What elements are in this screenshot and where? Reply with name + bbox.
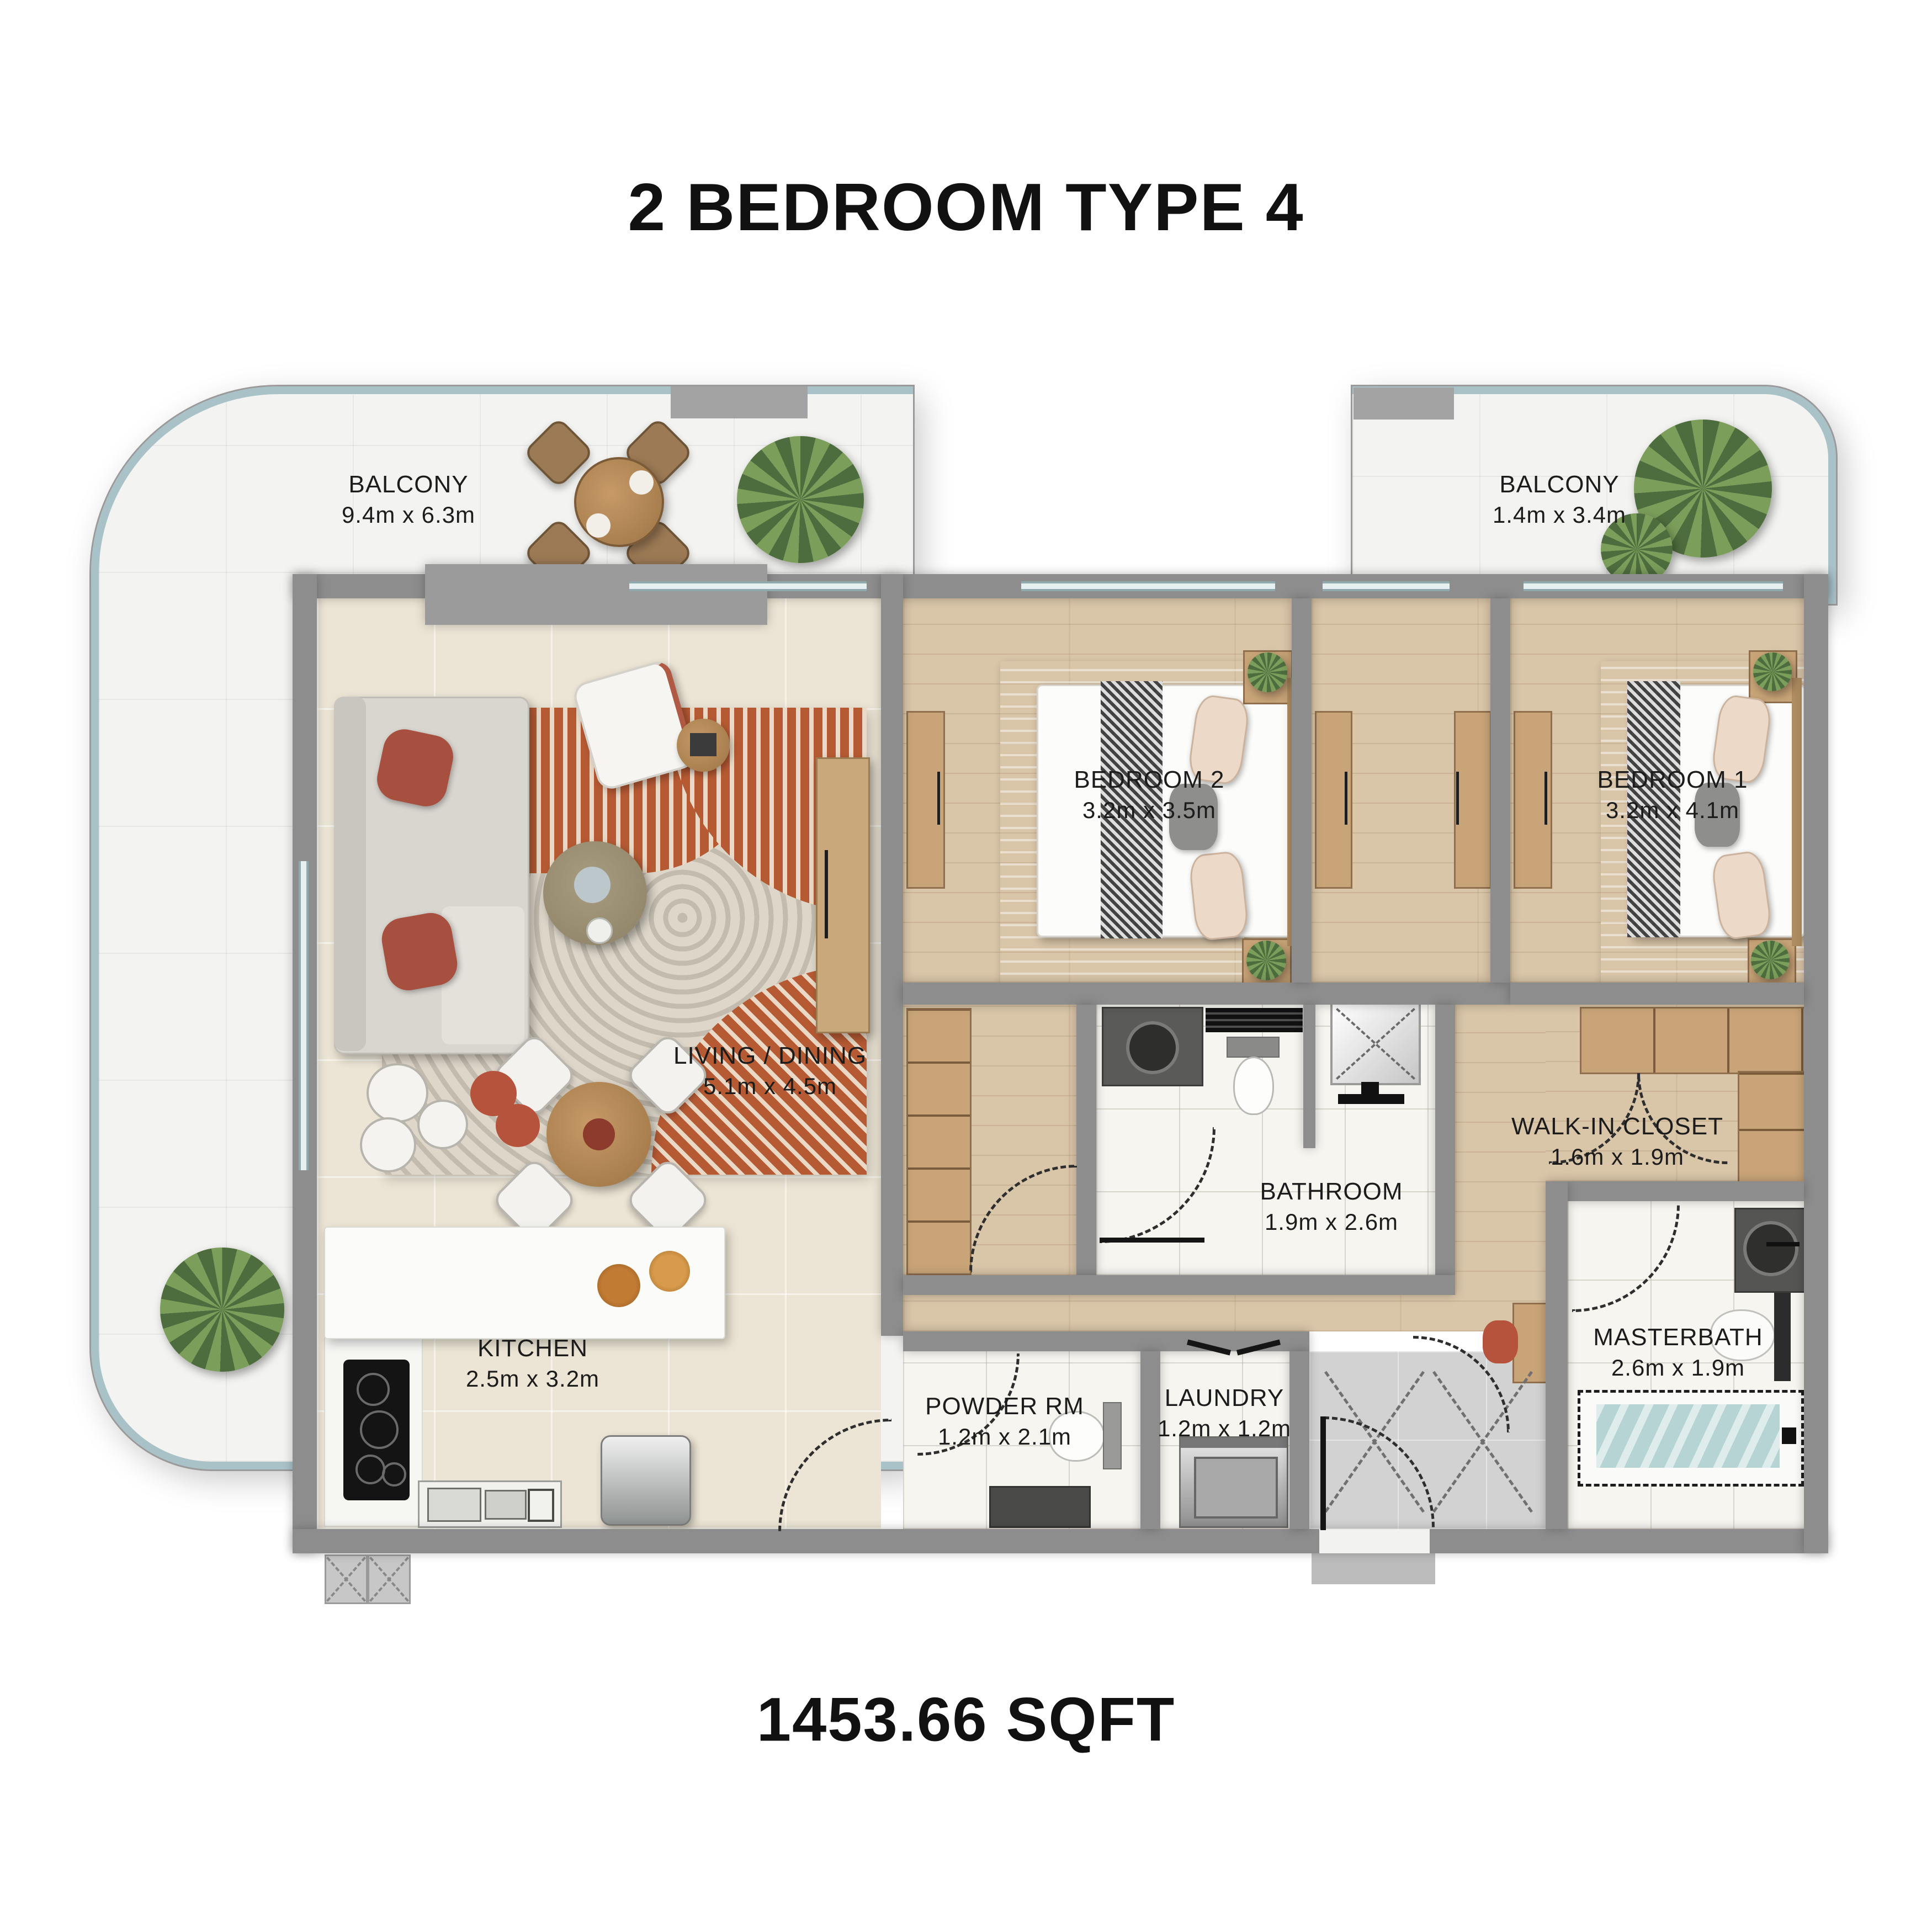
wall-bed2-hall <box>1292 598 1312 983</box>
outdoor-table <box>574 457 664 547</box>
wall-right <box>1804 574 1828 1553</box>
powder-vanity <box>989 1486 1091 1528</box>
wall-bath-stub <box>1303 1005 1315 1148</box>
sofa-chaise <box>442 906 524 1044</box>
bathtub-faucet <box>1782 1427 1796 1444</box>
wardrobe-handle <box>1456 772 1459 825</box>
food-bowl <box>597 1264 640 1307</box>
wall-masterbath-left <box>1546 1181 1568 1529</box>
closet2-cabinet <box>906 1008 972 1275</box>
console-handle <box>825 850 828 938</box>
utility-box <box>325 1554 368 1604</box>
wall-bottom <box>293 1529 1828 1553</box>
tv-console <box>816 757 870 1033</box>
room-dims: 1.9m x 2.6m <box>1260 1207 1403 1238</box>
label-balcony-right: BALCONY 1.4m x 3.4m <box>1493 469 1626 530</box>
label-laundry: LAUNDRY 1.2m x 1.2m <box>1158 1382 1291 1444</box>
red-plant-pot <box>496 1104 540 1147</box>
window-living <box>629 581 867 591</box>
room-name: BALCONY <box>1493 469 1626 500</box>
room-name: WALK-IN CLOSET <box>1511 1111 1723 1142</box>
towel-rack <box>1206 1008 1303 1032</box>
floor-plant-pot <box>417 1100 468 1149</box>
shower-head <box>1338 1094 1404 1104</box>
wall-bath-left <box>1076 1005 1096 1275</box>
label-living-dining: LIVING / DINING 5.1m x 4.5m <box>673 1040 867 1102</box>
cooktop <box>343 1360 410 1500</box>
sofa-pillow <box>379 910 461 994</box>
wall-bed2-bath <box>903 983 1510 1005</box>
foyer-chair <box>1483 1320 1518 1363</box>
utility-box <box>368 1554 411 1604</box>
shower <box>1330 1002 1421 1085</box>
wardrobe-handle <box>937 772 940 825</box>
label-bedroom2: BEDROOM 2 3.2m x 3.5m <box>1074 764 1224 826</box>
sofa-armrest <box>334 697 366 1051</box>
toilet <box>1227 1037 1280 1058</box>
wall-masterbath-top <box>1568 1181 1804 1201</box>
room-dims: 2.5m x 3.2m <box>466 1364 599 1394</box>
nightstand-plant-icon <box>1246 941 1286 980</box>
palm-plant-icon <box>160 1248 284 1372</box>
wall-header-block <box>425 564 767 625</box>
bed1-headboard <box>1792 678 1802 946</box>
room-dims: 2.6m x 1.9m <box>1593 1353 1763 1383</box>
book <box>690 733 716 756</box>
walkin-cabinet-side <box>1738 1071 1807 1187</box>
nightstand-plant-icon <box>1751 941 1790 979</box>
entry-stoop <box>1312 1553 1435 1584</box>
room-name: BEDROOM 1 <box>1597 764 1748 795</box>
room-dims: 3.2m x 3.5m <box>1074 795 1224 826</box>
room-dims: 1.6m x 1.9m <box>1511 1142 1723 1172</box>
masterbath-screen <box>1774 1293 1791 1381</box>
round-appliance <box>601 1435 691 1526</box>
parapet-block-right <box>1354 388 1454 420</box>
kitchen-sink <box>418 1480 562 1528</box>
window-living-side <box>299 861 309 1170</box>
room-dims: 1.2m x 2.1m <box>925 1422 1084 1452</box>
room-name: BEDROOM 2 <box>1074 764 1224 795</box>
label-walkin-closet: WALK-IN CLOSET 1.6m x 1.9m <box>1511 1111 1723 1172</box>
shower-head <box>1361 1082 1379 1095</box>
label-balcony-left: BALCONY 9.4m x 6.3m <box>342 469 475 530</box>
palm-plant-icon <box>737 436 864 563</box>
window-hall <box>1323 581 1450 591</box>
label-kitchen: KITCHEN 2.5m x 3.2m <box>466 1333 599 1394</box>
floor-plant-pot <box>360 1117 416 1172</box>
bathroom-sink <box>1126 1021 1179 1074</box>
masterbath-faucet <box>1766 1242 1800 1246</box>
wardrobe-handle <box>1544 772 1547 825</box>
floor-plan-canvas: 2 BEDROOM TYPE 4 1453.66 SQFT <box>0 0 1932 1932</box>
room-dims: 3.2m x 4.1m <box>1597 795 1748 826</box>
label-powder-room: POWDER RM 1.2m x 2.1m <box>925 1390 1084 1452</box>
outdoor-plate <box>629 470 654 495</box>
bathtub-water <box>1596 1404 1780 1468</box>
page-title: 2 BEDROOM TYPE 4 <box>628 168 1304 246</box>
powder-toilet-tank <box>1103 1402 1122 1469</box>
room-name: LIVING / DINING <box>673 1040 867 1071</box>
walkin-cabinet-top <box>1580 1007 1807 1074</box>
room-dims: 5.1m x 4.5m <box>673 1071 867 1102</box>
room-dims: 1.4m x 3.4m <box>1493 500 1626 530</box>
room-name: BATHROOM <box>1260 1176 1403 1207</box>
nightstand-plant-icon <box>1248 652 1287 692</box>
table-tray <box>574 867 611 903</box>
room-name: POWDER RM <box>925 1390 1084 1422</box>
room-name: MASTERBATH <box>1593 1321 1763 1353</box>
area-text: 1453.66 SQFT <box>757 1684 1176 1755</box>
washing-machine <box>1179 1436 1288 1528</box>
outdoor-plate <box>586 513 611 538</box>
corridor-floor <box>903 1295 1546 1331</box>
food-bowl <box>649 1251 690 1292</box>
label-bathroom: BATHROOM 1.9m x 2.6m <box>1260 1176 1403 1238</box>
toilet-bowl <box>1233 1057 1274 1115</box>
bed2-pillow <box>1188 850 1250 941</box>
table-kettle <box>586 917 613 944</box>
hall-wardrobe <box>1454 711 1492 889</box>
label-masterbath: MASTERBATH 2.6m x 1.9m <box>1593 1321 1763 1383</box>
label-bedroom1: BEDROOM 1 3.2m x 4.1m <box>1597 764 1748 826</box>
wall-bath-bottom <box>903 1275 1455 1295</box>
room-dims: 9.4m x 6.3m <box>342 500 475 530</box>
room-name: KITCHEN <box>466 1333 599 1364</box>
wall-laundry-right <box>1289 1351 1309 1529</box>
window-bedroom2 <box>1021 581 1275 591</box>
wall-closet-top <box>1510 983 1804 1005</box>
nightstand-plant-icon <box>1753 652 1792 691</box>
wall-living-divider <box>881 574 903 1336</box>
wall-bed1-hall <box>1490 598 1510 983</box>
entry-door-leaf <box>1320 1416 1326 1530</box>
room-name: LAUNDRY <box>1158 1382 1291 1414</box>
window-bedroom1 <box>1524 581 1783 591</box>
dining-centerpiece <box>583 1118 615 1150</box>
room-dims: 1.2m x 1.2m <box>1158 1414 1291 1444</box>
wall-bath-right <box>1435 1005 1455 1275</box>
wardrobe-handle <box>1345 772 1347 825</box>
masterbath-sink <box>1743 1221 1798 1276</box>
parapet-block-left <box>671 386 808 418</box>
room-name: BALCONY <box>342 469 475 500</box>
bathroom-door-leaf <box>1100 1238 1204 1243</box>
entry-door-opening <box>1319 1529 1430 1553</box>
